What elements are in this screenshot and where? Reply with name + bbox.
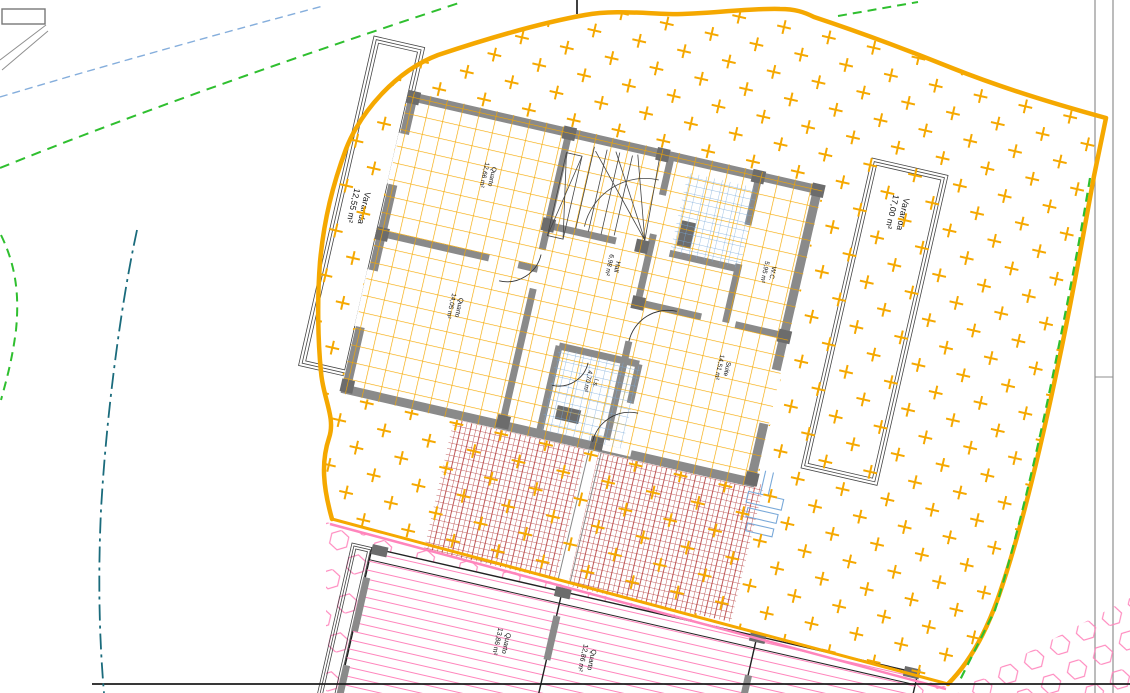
teal-dashdot-limit xyxy=(99,230,137,693)
blue-dashed-limit xyxy=(0,6,323,97)
cad-drawing-canvas: Quarto 13,86 m² Quarto 12,86 m² Varanda … xyxy=(0,0,1130,693)
road-edge-lines xyxy=(0,25,48,70)
sheet-border-right xyxy=(1095,0,1113,693)
corner-block-outline xyxy=(2,9,45,24)
floorplan-svg: Quarto 13,86 m² Quarto 12,86 m² Varanda … xyxy=(0,0,1130,693)
green-dashed-limit-topright xyxy=(838,2,918,16)
green-dashed-limit-edge xyxy=(1,235,17,400)
